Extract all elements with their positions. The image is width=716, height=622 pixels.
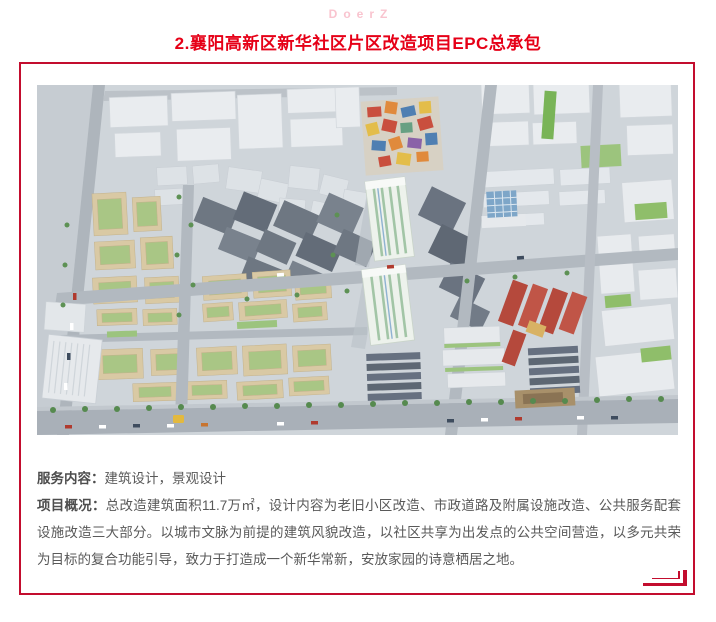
project-details: 服务内容：建筑设计，景观设计 项目概况：总改造建筑面积11.7万㎡，设计内容为老… [37, 465, 681, 573]
corner-bracket-icon [641, 569, 687, 586]
brand-logo: DoerZ [0, 7, 716, 21]
corner-bracket-inner [652, 571, 680, 579]
page: DoerZ 2.襄阳高新区新华社区片区改造项目EPC总承包 [0, 0, 716, 622]
page-title: 2.襄阳高新区新华社区片区改造项目EPC总承包 [0, 29, 716, 54]
overview-line: 项目概况：总改造建筑面积11.7万㎡，设计内容为老旧小区改造、市政道路及附属设施… [37, 492, 681, 573]
service-line: 服务内容：建筑设计，景观设计 [37, 465, 681, 492]
content-frame: 服务内容：建筑设计，景观设计 项目概况：总改造建筑面积11.7万㎡，设计内容为老… [19, 62, 695, 595]
service-value: 建筑设计，景观设计 [105, 471, 227, 486]
service-label: 服务内容： [37, 471, 105, 486]
overview-label: 项目概况： [37, 498, 106, 513]
overview-value: 总改造建筑面积11.7万㎡，设计内容为老旧小区改造、市政道路及附属设施改造、公共… [37, 498, 681, 567]
project-aerial-render-image [37, 85, 678, 435]
